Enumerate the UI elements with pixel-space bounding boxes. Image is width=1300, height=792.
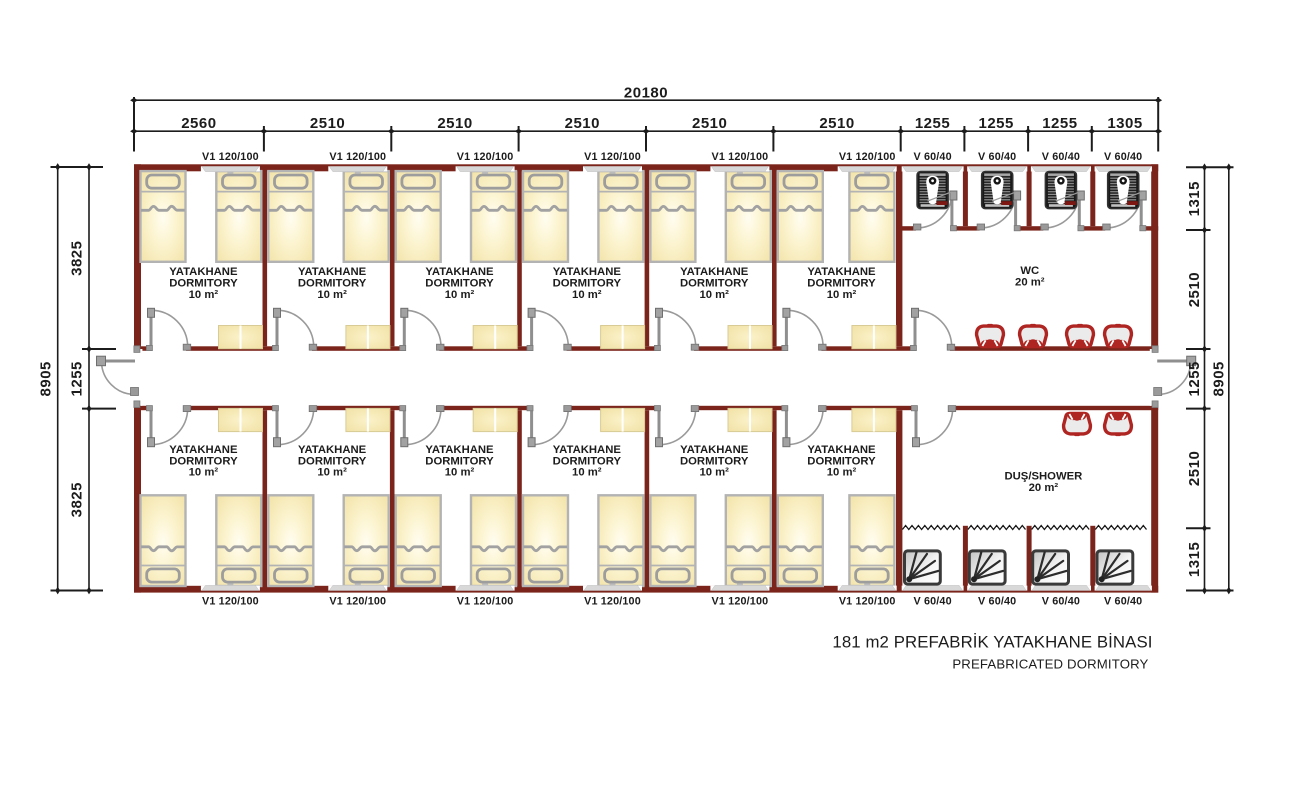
- svg-text:V1 120/100: V1 120/100: [712, 595, 769, 607]
- svg-text:V1 120/100: V1 120/100: [584, 595, 641, 607]
- svg-text:WC: WC: [1020, 265, 1039, 277]
- svg-text:8905: 8905: [1210, 361, 1227, 396]
- svg-text:V1 120/100: V1 120/100: [329, 595, 386, 607]
- svg-text:10 m²: 10 m²: [445, 467, 475, 479]
- svg-text:2510: 2510: [1186, 272, 1203, 307]
- svg-text:10 m²: 10 m²: [317, 289, 347, 301]
- svg-text:V1 120/100: V1 120/100: [457, 151, 514, 163]
- svg-text:10 m²: 10 m²: [317, 467, 347, 479]
- svg-text:V 60/40: V 60/40: [978, 595, 1016, 607]
- svg-text:DORMITORY: DORMITORY: [425, 278, 494, 290]
- svg-text:DORMITORY: DORMITORY: [807, 455, 876, 467]
- svg-text:YATAKHANE: YATAKHANE: [680, 266, 749, 278]
- svg-text:V 60/40: V 60/40: [978, 151, 1016, 163]
- svg-text:2510: 2510: [1186, 451, 1203, 486]
- svg-text:10 m²: 10 m²: [189, 289, 219, 301]
- svg-text:YATAKHANE: YATAKHANE: [553, 266, 622, 278]
- svg-text:DORMITORY: DORMITORY: [169, 278, 238, 290]
- svg-text:V 60/40: V 60/40: [913, 151, 951, 163]
- svg-text:3825: 3825: [69, 482, 86, 517]
- svg-text:YATAKHANE: YATAKHANE: [169, 266, 238, 278]
- svg-text:V 60/40: V 60/40: [913, 595, 951, 607]
- svg-text:1255: 1255: [915, 115, 950, 132]
- svg-text:10 m²: 10 m²: [699, 467, 729, 479]
- svg-text:DORMITORY: DORMITORY: [680, 278, 749, 290]
- svg-text:181 m2 PREFABRİK YATAKHANE BİN: 181 m2 PREFABRİK YATAKHANE BİNASI: [832, 633, 1152, 652]
- svg-text:3825: 3825: [69, 241, 86, 276]
- svg-text:YATAKHANE: YATAKHANE: [298, 444, 367, 456]
- svg-text:V1 120/100: V1 120/100: [712, 151, 769, 163]
- svg-text:1315: 1315: [1186, 181, 1203, 216]
- svg-text:2510: 2510: [437, 115, 472, 132]
- svg-text:V1 120/100: V1 120/100: [202, 595, 259, 607]
- svg-text:20180: 20180: [624, 85, 668, 102]
- svg-text:YATAKHANE: YATAKHANE: [807, 266, 876, 278]
- svg-text:2560: 2560: [181, 115, 216, 132]
- svg-text:10 m²: 10 m²: [572, 289, 602, 301]
- svg-text:2510: 2510: [310, 115, 345, 132]
- svg-text:20 m²: 20 m²: [1015, 276, 1045, 288]
- svg-text:YATAKHANE: YATAKHANE: [425, 444, 494, 456]
- svg-text:V1 120/100: V1 120/100: [457, 595, 514, 607]
- svg-text:V1 120/100: V1 120/100: [839, 151, 896, 163]
- svg-text:V 60/40: V 60/40: [1042, 595, 1080, 607]
- svg-text:V1 120/100: V1 120/100: [584, 151, 641, 163]
- svg-text:1255: 1255: [69, 361, 86, 396]
- svg-text:2510: 2510: [565, 115, 600, 132]
- svg-text:10 m²: 10 m²: [189, 467, 219, 479]
- svg-text:2510: 2510: [692, 115, 727, 132]
- svg-text:YATAKHANE: YATAKHANE: [680, 444, 749, 456]
- svg-text:DUŞ/SHOWER: DUŞ/SHOWER: [1004, 471, 1082, 483]
- svg-text:V 60/40: V 60/40: [1104, 151, 1142, 163]
- svg-text:YATAKHANE: YATAKHANE: [425, 266, 494, 278]
- svg-text:10 m²: 10 m²: [699, 289, 729, 301]
- svg-text:V1 120/100: V1 120/100: [839, 595, 896, 607]
- svg-text:1255: 1255: [1186, 361, 1203, 396]
- svg-text:YATAKHANE: YATAKHANE: [807, 444, 876, 456]
- svg-text:1305: 1305: [1107, 115, 1142, 132]
- svg-text:V 60/40: V 60/40: [1104, 595, 1142, 607]
- svg-text:DORMITORY: DORMITORY: [298, 278, 367, 290]
- svg-text:2510: 2510: [819, 115, 854, 132]
- svg-text:10 m²: 10 m²: [827, 467, 857, 479]
- svg-text:PREFABRICATED DORMITORY: PREFABRICATED DORMITORY: [952, 657, 1148, 672]
- svg-text:DORMITORY: DORMITORY: [553, 455, 622, 467]
- svg-text:V1 120/100: V1 120/100: [329, 151, 386, 163]
- svg-text:DORMITORY: DORMITORY: [807, 278, 876, 290]
- svg-text:V 60/40: V 60/40: [1042, 151, 1080, 163]
- svg-text:YATAKHANE: YATAKHANE: [298, 266, 367, 278]
- svg-text:1255: 1255: [1042, 115, 1077, 132]
- svg-text:1255: 1255: [979, 115, 1014, 132]
- svg-text:20 m²: 20 m²: [1029, 482, 1059, 494]
- svg-text:YATAKHANE: YATAKHANE: [553, 444, 622, 456]
- svg-text:10 m²: 10 m²: [445, 289, 475, 301]
- svg-text:10 m²: 10 m²: [572, 467, 602, 479]
- svg-text:DORMITORY: DORMITORY: [298, 455, 367, 467]
- svg-text:1315: 1315: [1186, 542, 1203, 577]
- svg-text:DORMITORY: DORMITORY: [425, 455, 494, 467]
- svg-text:YATAKHANE: YATAKHANE: [169, 444, 238, 456]
- svg-text:10 m²: 10 m²: [827, 289, 857, 301]
- svg-text:DORMITORY: DORMITORY: [169, 455, 238, 467]
- svg-text:DORMITORY: DORMITORY: [680, 455, 749, 467]
- svg-text:V1 120/100: V1 120/100: [202, 151, 259, 163]
- svg-text:8905: 8905: [38, 361, 55, 396]
- svg-text:DORMITORY: DORMITORY: [553, 278, 622, 290]
